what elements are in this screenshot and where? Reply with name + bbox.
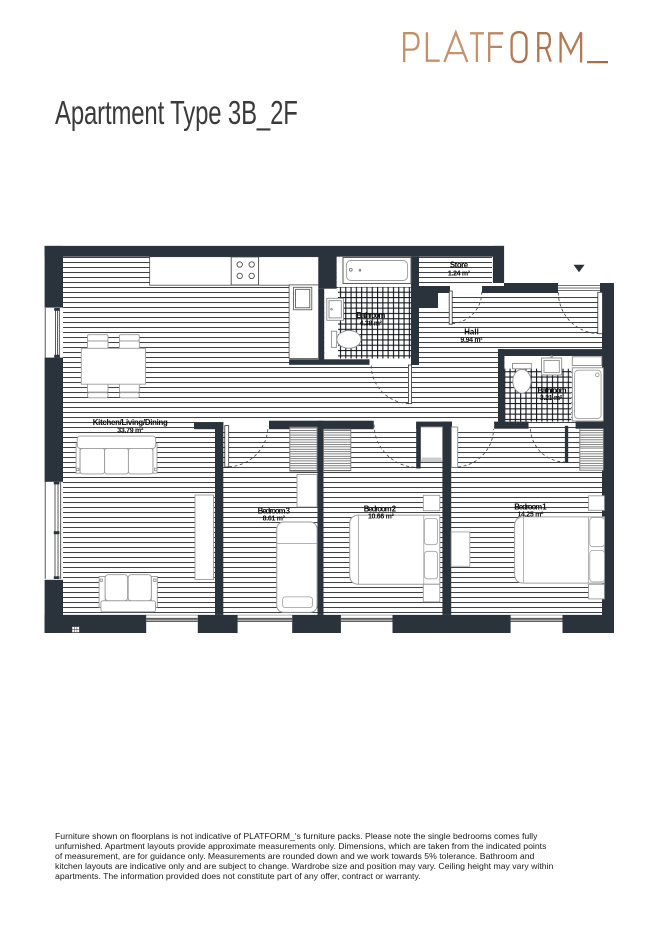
svg-text:9.94 m²: 9.94 m² <box>460 337 483 344</box>
svg-text:Bathroom: Bathroom <box>356 311 385 320</box>
svg-text:1.24 m²: 1.24 m² <box>448 271 471 278</box>
svg-text:3.21 m²: 3.21 m² <box>540 395 563 402</box>
svg-text:Bedroom 2: Bedroom 2 <box>364 504 397 513</box>
svg-text:Hall: Hall <box>464 328 479 337</box>
svg-text:Bedroom 1: Bedroom 1 <box>514 502 547 511</box>
svg-text:Store: Store <box>450 261 469 270</box>
svg-text:Bedroom 3: Bedroom 3 <box>258 506 291 515</box>
svg-text:Bathroom: Bathroom <box>538 386 567 395</box>
svg-text:8.61 m²: 8.61 m² <box>263 516 286 523</box>
svg-text:14.25 m²: 14.25 m² <box>517 512 544 519</box>
svg-text:10.66 m²: 10.66 m² <box>368 514 395 521</box>
svg-text:33.79 m²: 33.79 m² <box>117 427 144 434</box>
svg-text:Kitchen/Living/Dining: Kitchen/Living/Dining <box>93 418 168 427</box>
svg-text:4.38 m²: 4.38 m² <box>360 320 383 327</box>
